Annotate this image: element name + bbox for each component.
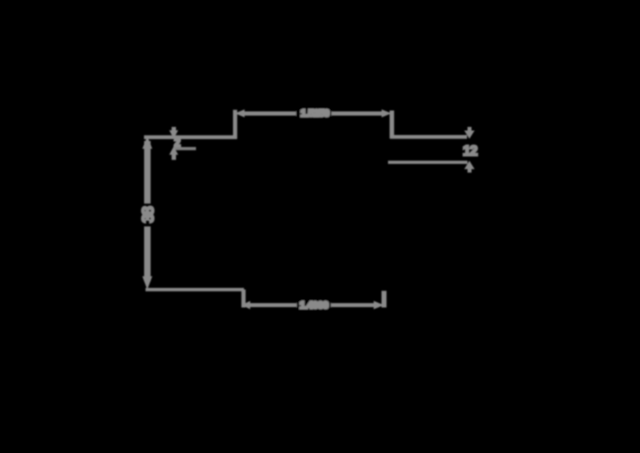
- svg-text:12: 12: [463, 144, 478, 160]
- svg-text:2: 2: [174, 137, 180, 149]
- svg-text:38: 38: [140, 206, 158, 223]
- svg-text:1.5250: 1.5250: [301, 108, 330, 120]
- svg-text:1.4000: 1.4000: [300, 299, 329, 311]
